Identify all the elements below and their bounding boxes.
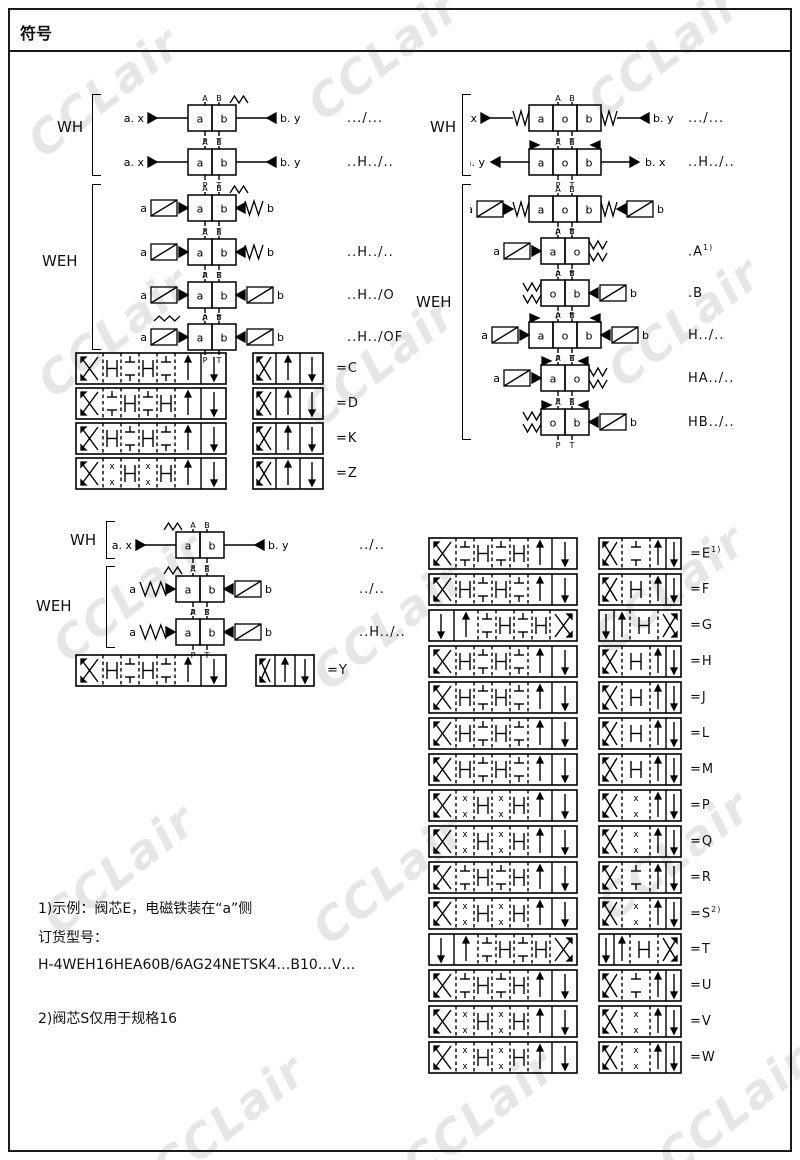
svg-text:a. x: a. x [124,112,145,125]
svg-text:b: b [630,416,637,429]
group-label-wh-right-top: WH [430,118,456,136]
svg-text:x: x [498,830,504,840]
spool-strip-long [75,422,227,455]
bracket-weh-left-low [106,566,115,648]
spool-code: =W [690,1050,716,1065]
spool-strip-short [255,654,315,687]
svg-text:B: B [569,185,575,194]
svg-text:B: B [569,138,575,147]
svg-text:b. x: b. x [645,156,666,169]
spool-code: =S2) [690,905,721,921]
spool-strip-short [252,457,324,490]
spool-strip-long: xxxx [428,1041,578,1074]
svg-text:b. y: b. y [653,112,674,125]
svg-text:A: A [555,94,561,103]
svg-text:B: B [569,354,575,363]
spool-strip-row: =U [428,969,712,1002]
header-divider [8,50,790,52]
spool-strip-short [598,753,682,786]
spool-code: =L [690,726,710,741]
svg-text:b: b [586,113,593,126]
spool-strip-long [75,654,227,687]
svg-text:o: o [574,373,581,386]
spool-strip-short [598,537,682,570]
svg-text:a: a [185,584,192,597]
spool-strip-long: xxxx [428,1005,578,1038]
svg-text:b: b [642,329,649,342]
valve-code: .A1) [688,243,713,259]
svg-text:a: a [140,202,147,215]
spool-strip-short [598,609,682,642]
valve-code: ../.. [359,582,385,597]
svg-text:b: b [586,330,593,343]
svg-text:b: b [277,289,284,302]
valve-symbol-row: obABPTbHB../.. [470,394,735,450]
svg-text:o: o [562,157,569,170]
svg-text:b: b [265,583,272,596]
spool-strip-short: xx [598,1041,682,1074]
svg-text:a: a [538,330,545,343]
svg-text:x: x [633,1026,639,1036]
svg-text:B: B [216,184,222,193]
svg-text:x: x [633,830,639,840]
spool-code: =J [690,690,707,705]
svg-text:o: o [550,417,557,430]
svg-text:A: A [202,228,208,237]
spool-strip-row: xxxxxx=S2) [428,897,721,930]
svg-text:A: A [555,185,561,194]
svg-text:A: A [202,94,208,103]
svg-text:a. y: a. y [470,156,485,169]
spool-strip-short [598,717,682,750]
svg-text:b: b [586,204,593,217]
svg-text:a: a [538,113,545,126]
spool-code: =K [336,431,357,446]
svg-text:b: b [574,288,581,301]
group-label-weh-left-low: WEH [36,597,72,615]
spool-strip-short: xx [598,789,682,822]
spool-strip-short: xx [598,1005,682,1038]
svg-text:x: x [462,1046,468,1056]
svg-text:x: x [498,902,504,912]
svg-text:B: B [569,311,575,320]
svg-text:o: o [562,330,569,343]
svg-text:x: x [633,794,639,804]
svg-text:x: x [145,478,151,488]
spool-strip-row: =K [75,422,357,455]
svg-text:b: b [209,627,216,640]
svg-text:b. y: b. y [268,539,289,552]
svg-text:a: a [197,113,204,126]
valve-code: HA../.. [688,371,734,386]
svg-text:x: x [633,810,639,820]
svg-text:x: x [109,478,115,488]
spool-strip-row: xxxx=Z [75,457,358,490]
svg-text:x: x [462,902,468,912]
spool-strip-short [598,933,682,966]
spool-code: =M [690,762,714,777]
spool-strip-row: =D [75,387,359,420]
svg-text:a. x: a. x [470,112,477,125]
valve-code: ..H../.. [347,155,394,170]
spool-strip-row: =T [428,933,711,966]
svg-text:P: P [556,441,561,450]
svg-text:x: x [498,810,504,820]
svg-text:b: b [221,290,228,303]
spool-strip-row: =C [75,352,358,385]
svg-text:x: x [633,1046,639,1056]
svg-text:b: b [209,584,216,597]
spool-strip-short [252,387,324,420]
svg-text:A: A [190,608,196,617]
svg-text:b: b [267,202,274,215]
svg-text:T: T [569,441,575,450]
svg-text:B: B [204,521,210,530]
svg-text:b: b [221,113,228,126]
svg-text:a: a [185,540,192,553]
svg-text:a: a [197,157,204,170]
group-label-weh-left-top: WEH [42,252,78,270]
svg-text:b: b [574,417,581,430]
svg-text:a: a [550,373,557,386]
spool-strip-short [598,969,682,1002]
svg-text:x: x [462,794,468,804]
svg-text:x: x [462,1026,468,1036]
spool-strip-long: xxxx [428,897,578,930]
svg-text:A: A [555,398,561,407]
spool-strip-long [75,387,227,420]
note-2: 订货型号： [38,927,108,947]
svg-text:b: b [221,157,228,170]
svg-text:B: B [569,269,575,278]
note-1: 1)示例：阀芯E，电磁铁装在“a”侧 [38,898,252,918]
svg-text:B: B [569,94,575,103]
spool-code: =F [690,582,710,597]
svg-text:b: b [267,246,274,259]
svg-text:x: x [633,902,639,912]
spool-code: =T [690,942,711,957]
spool-strip-long [428,609,578,642]
svg-text:a: a [140,331,147,344]
svg-text:B: B [569,398,575,407]
svg-text:x: x [498,918,504,928]
svg-text:A: A [202,184,208,193]
spool-strip-long: xxxx [428,789,578,822]
spool-strip-row: =R [428,861,712,894]
svg-text:B: B [204,608,210,617]
spool-strip-long [428,645,578,678]
svg-text:A: A [190,565,196,574]
spool-strip-long [428,969,578,1002]
note-3: H-4WEH16HEA60B/6AG24NETSK4…B10…V… [38,957,355,973]
spool-code: =P [690,798,711,813]
svg-text:a: a [140,246,147,259]
svg-text:B: B [216,94,222,103]
svg-text:x: x [462,846,468,856]
spool-code: =G [690,618,713,633]
svg-text:a: a [140,289,147,302]
valve-code: .../... [688,111,724,126]
svg-text:a: a [538,157,545,170]
spool-code: =Z [336,466,358,481]
svg-text:a: a [538,204,545,217]
svg-text:b: b [209,540,216,553]
svg-text:A: A [555,227,561,236]
svg-text:A: A [555,354,561,363]
svg-text:B: B [216,271,222,280]
svg-text:x: x [498,846,504,856]
spool-strip-short: xx [598,897,682,930]
svg-text:x: x [498,1062,504,1072]
svg-text:x: x [145,462,151,472]
valve-code: HB../.. [688,415,735,430]
svg-text:x: x [633,1062,639,1072]
spool-strip-long [428,681,578,714]
spool-strip-row: =M [428,753,714,786]
svg-text:A: A [202,138,208,147]
spool-strip-row: =F [428,573,710,606]
svg-text:b: b [221,332,228,345]
valve-symbol: abABPTab [112,604,337,660]
svg-text:b: b [630,287,637,300]
catalog-page: CCLairCCLairCCLairCCLairCCLairCCLairCCLa… [0,0,800,1160]
svg-text:b: b [277,331,284,344]
svg-text:B: B [216,313,222,322]
group-label-weh-right-top: WEH [416,293,452,311]
spool-strip-long [428,537,578,570]
spool-strip-long [428,861,578,894]
spool-strip-row: =G [428,609,713,642]
spool-strip-long: xxxx [428,825,578,858]
bracket-wh-right-top [462,94,471,176]
valve-symbol-row: abABPTab..H../.. [112,604,406,660]
svg-text:A: A [555,269,561,278]
svg-text:b: b [657,203,664,216]
svg-text:x: x [633,846,639,856]
svg-text:a: a [493,245,500,258]
spool-strip-long [75,352,227,385]
svg-text:a: a [197,247,204,260]
spool-strip-short [598,861,682,894]
note-4: 2)阀芯S仅用于规格16 [38,1008,177,1028]
svg-text:a: a [197,290,204,303]
spool-strip-row: =J [428,681,707,714]
spool-strip-short [598,681,682,714]
spool-strip-row: =H [428,645,713,678]
svg-text:o: o [562,113,569,126]
page-title: 符号 [20,20,52,44]
svg-text:A: A [555,311,561,320]
bracket-weh-left-top [92,184,101,350]
svg-text:x: x [633,1010,639,1020]
svg-text:B: B [204,565,210,574]
svg-text:a: a [129,626,136,639]
svg-text:b: b [221,203,228,216]
spool-strip-long [428,573,578,606]
svg-text:b: b [221,247,228,260]
svg-text:a: a [129,583,136,596]
spool-strip-long [428,753,578,786]
bracket-weh-right-top [462,184,471,440]
valve-code: .B [688,286,703,301]
svg-text:o: o [574,246,581,259]
svg-text:x: x [462,1062,468,1072]
svg-text:B: B [569,227,575,236]
svg-text:x: x [462,830,468,840]
valve-code: H../.. [688,328,724,343]
svg-text:b. y: b. y [280,112,301,125]
svg-text:x: x [498,794,504,804]
svg-text:a: a [185,627,192,640]
spool-code: =Y [327,663,348,678]
svg-text:a: a [197,332,204,345]
svg-text:x: x [633,918,639,928]
svg-text:b: b [586,157,593,170]
spool-strip-short: xx [598,825,682,858]
spool-strip-row: xxxxxx=W [428,1041,716,1074]
spool-strip-row: xxxxxx=Q [428,825,713,858]
spool-code: =U [690,978,712,993]
spool-strip-long [428,717,578,750]
valve-code: ..H../.. [359,625,406,640]
svg-text:x: x [462,1010,468,1020]
spool-code: =C [336,361,358,376]
spool-strip-short [598,645,682,678]
spool-strip-row: xxxxxx=P [428,789,711,822]
svg-text:o: o [550,288,557,301]
bracket-wh-left-top [92,94,101,176]
svg-text:o: o [562,204,569,217]
spool-strip-long: xxxx [75,457,227,490]
valve-code: ..H../O [347,288,395,303]
spool-strip-short [252,422,324,455]
svg-text:a. x: a. x [112,539,132,552]
svg-text:x: x [109,462,115,472]
svg-text:a: a [481,329,488,342]
bracket-wh-left-low [106,521,115,559]
svg-text:B: B [216,228,222,237]
svg-text:A: A [190,521,196,530]
spool-code: =R [690,870,712,885]
diagram-content: abABPTa. xb. y.../...abABPTa. xb. y..H..… [0,0,800,1160]
spool-strip-row: =Y [75,654,348,687]
spool-code: =V [690,1014,712,1029]
svg-text:x: x [498,1010,504,1020]
svg-text:a. x: a. x [124,156,145,169]
svg-text:x: x [462,918,468,928]
spool-code: =Q [690,834,713,849]
valve-code: .../... [347,111,383,126]
spool-code: =E1) [690,545,721,561]
valve-code: ..H../.. [347,245,394,260]
spool-strip-short [252,352,324,385]
svg-text:A: A [555,138,561,147]
svg-text:a: a [493,372,500,385]
valve-symbol: obABPTb [470,394,682,450]
spool-strip-row: =E1) [428,537,721,570]
spool-code: =H [690,654,713,669]
spool-strip-long [428,933,578,966]
spool-code: =D [336,396,359,411]
valve-code: ..H../OF [347,330,403,345]
spool-strip-row: xxxxxx=V [428,1005,712,1038]
svg-text:B: B [216,138,222,147]
spool-strip-short [598,573,682,606]
valve-code: ..H../.. [688,155,735,170]
svg-text:a: a [197,203,204,216]
svg-text:b: b [265,626,272,639]
svg-text:a: a [550,246,557,259]
spool-strip-row: =L [428,717,710,750]
svg-text:A: A [202,271,208,280]
svg-text:x: x [462,810,468,820]
svg-text:x: x [498,1026,504,1036]
svg-text:x: x [498,1046,504,1056]
svg-text:b. y: b. y [280,156,301,169]
svg-text:A: A [202,313,208,322]
valve-code: ../.. [359,538,385,553]
group-label-wh-left-low: WH [70,531,96,549]
group-label-wh-left-top: WH [57,118,83,136]
